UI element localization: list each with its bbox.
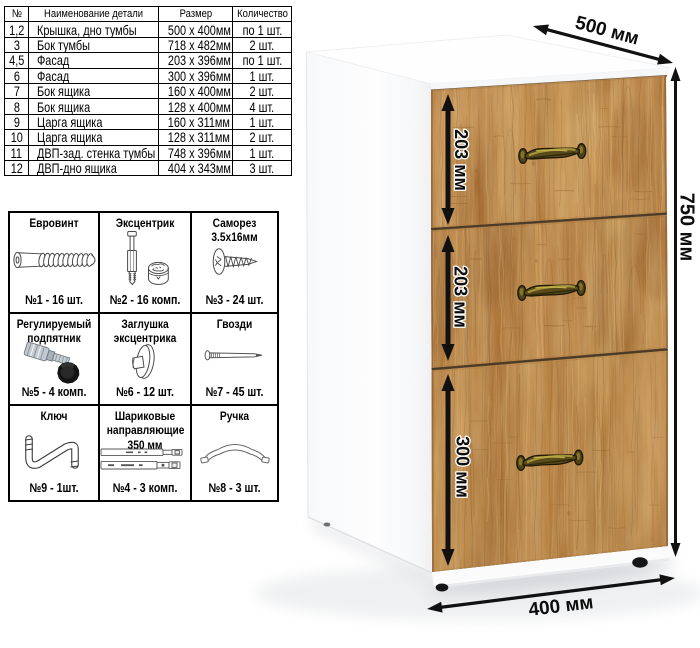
svg-text:300 мм: 300 мм [453, 436, 473, 498]
svg-text:750 мм: 750 мм [676, 193, 698, 262]
svg-text:203 мм: 203 мм [451, 129, 471, 191]
svg-text:203 мм: 203 мм [451, 266, 471, 328]
